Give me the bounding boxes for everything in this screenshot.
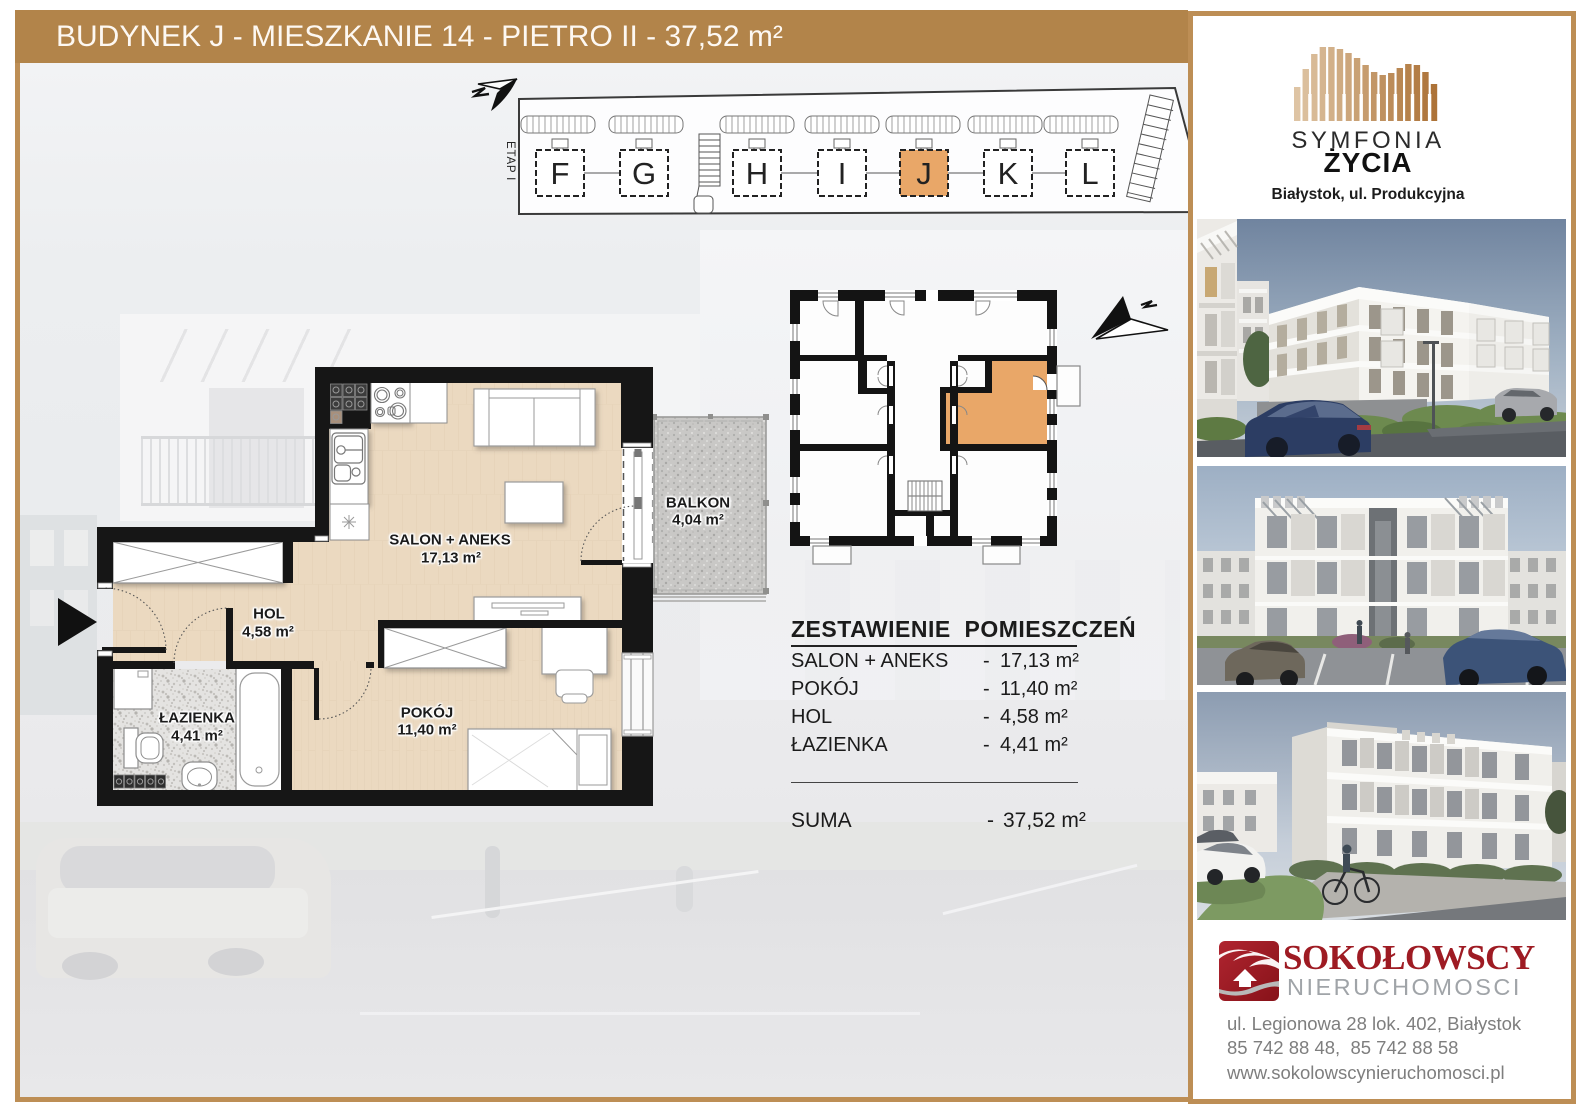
- svg-text:H: H: [746, 156, 768, 191]
- svg-text:K: K: [998, 156, 1019, 191]
- svg-text:J: J: [916, 156, 932, 191]
- svg-text:G: G: [632, 156, 656, 191]
- svg-text:F: F: [551, 156, 570, 191]
- svg-text:L: L: [1081, 156, 1098, 191]
- svg-text:I: I: [838, 156, 847, 191]
- svg-text:ETAP I: ETAP I: [504, 141, 516, 181]
